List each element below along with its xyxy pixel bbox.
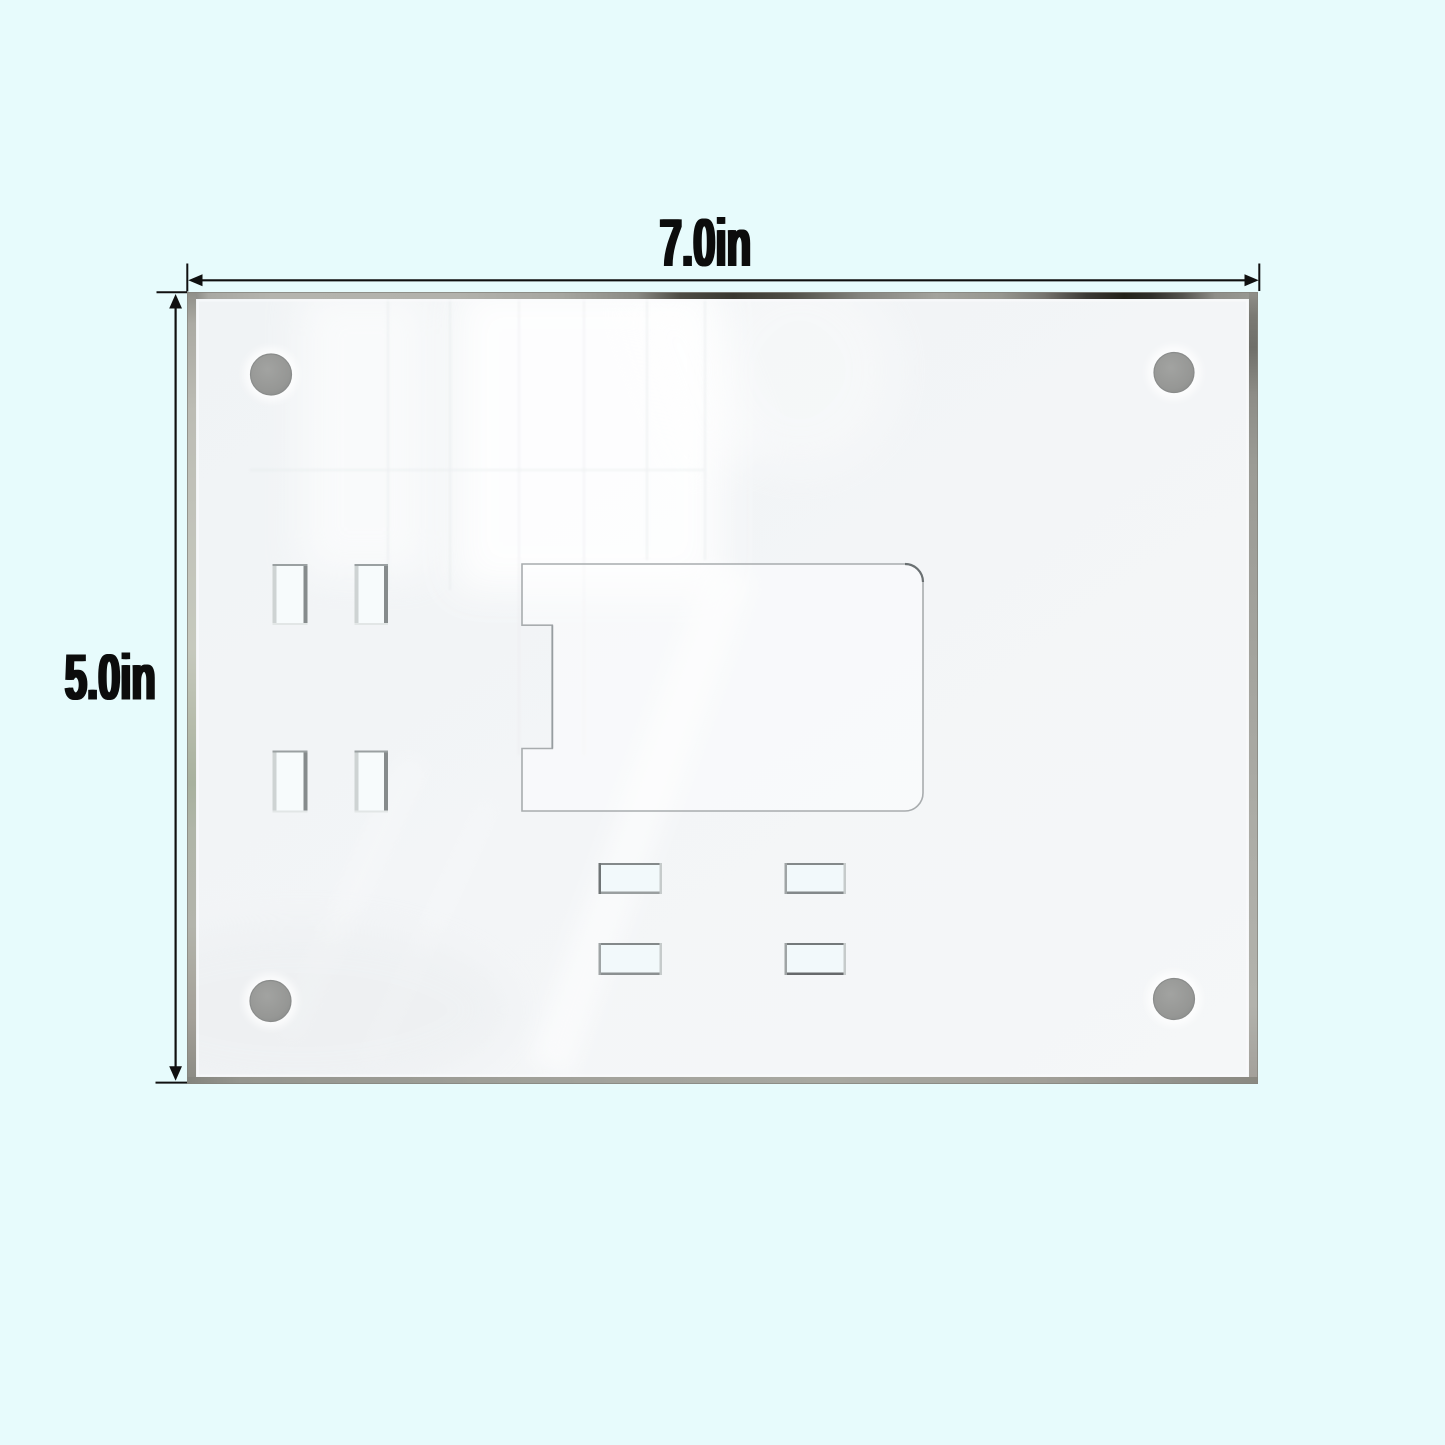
svg-text:7.0in: 7.0in — [661, 204, 753, 281]
svg-text:5.0in: 5.0in — [66, 641, 157, 713]
